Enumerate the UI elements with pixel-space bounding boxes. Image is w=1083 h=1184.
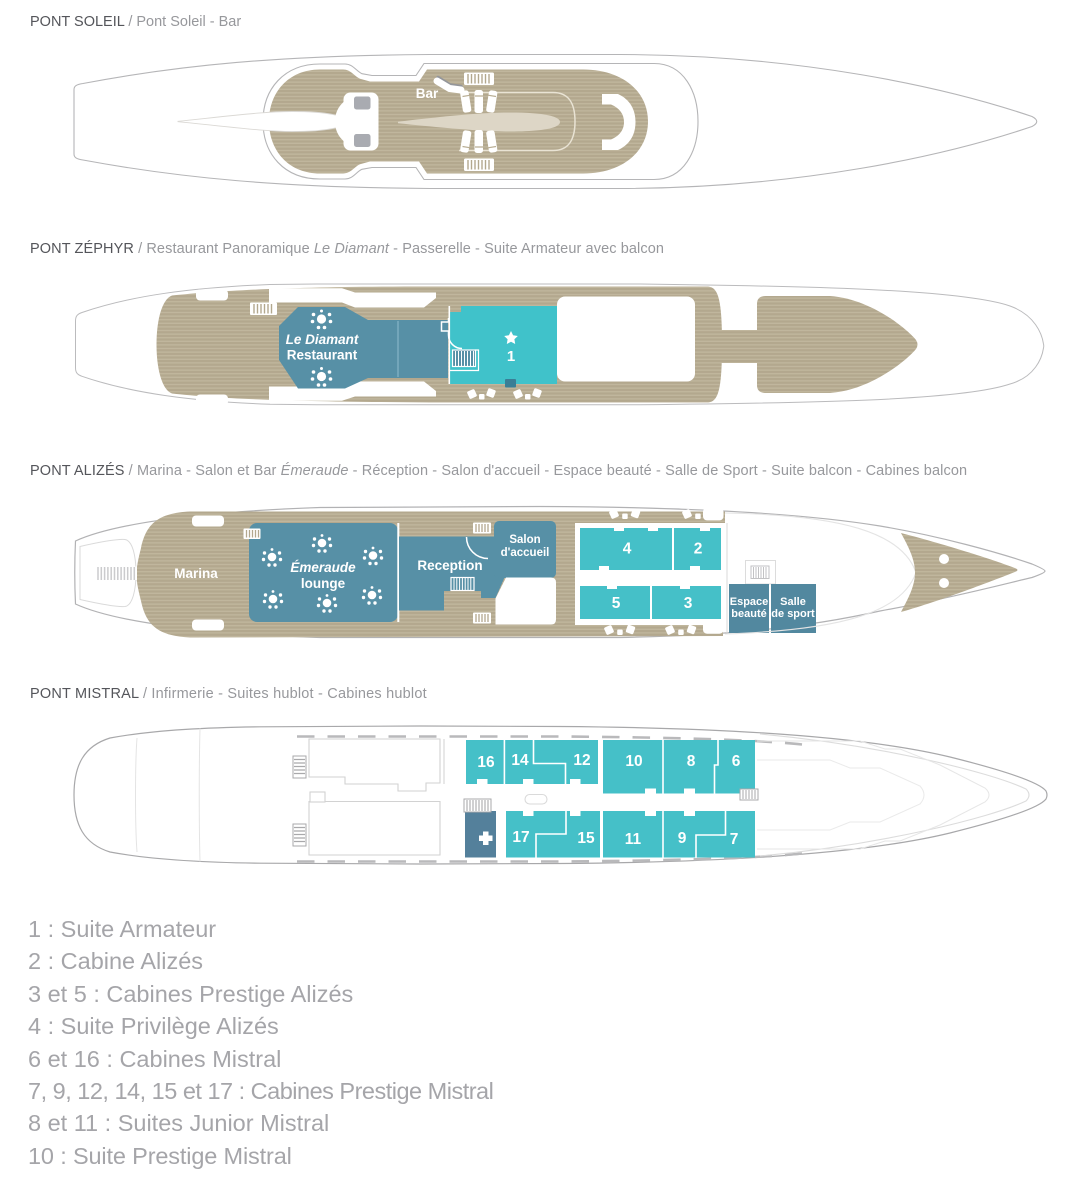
- svg-text:de sport: de sport: [771, 608, 815, 620]
- svg-text:Salon: Salon: [509, 534, 540, 546]
- svg-text:12: 12: [573, 752, 590, 769]
- svg-text:2: 2: [694, 541, 703, 558]
- svg-text:3: 3: [684, 595, 693, 612]
- svg-text:Salle: Salle: [780, 596, 806, 608]
- svg-text:16: 16: [477, 754, 495, 771]
- svg-text:14: 14: [511, 752, 529, 769]
- svg-text:17: 17: [512, 829, 529, 846]
- svg-text:Restaurant: Restaurant: [287, 348, 358, 363]
- svg-text:1: 1: [507, 348, 515, 365]
- svg-text:15: 15: [577, 830, 595, 847]
- svg-text:Marina: Marina: [174, 566, 218, 581]
- svg-text:10: 10: [625, 753, 642, 770]
- svg-text:5: 5: [612, 595, 621, 612]
- svg-text:7: 7: [730, 831, 739, 848]
- svg-text:11: 11: [625, 831, 642, 848]
- svg-text:lounge: lounge: [301, 576, 346, 591]
- svg-text:Reception: Reception: [417, 558, 482, 573]
- svg-text:8: 8: [687, 753, 696, 770]
- svg-text:Bar: Bar: [416, 86, 439, 101]
- svg-text:6: 6: [732, 753, 741, 770]
- svg-text:Le Diamant: Le Diamant: [286, 332, 359, 347]
- svg-text:Émeraude: Émeraude: [290, 560, 356, 575]
- svg-text:Espace: Espace: [730, 596, 769, 608]
- svg-text:d'accueil: d'accueil: [501, 547, 550, 559]
- svg-text:4: 4: [623, 541, 632, 558]
- svg-text:beauté: beauté: [731, 608, 766, 620]
- svg-text:9: 9: [678, 830, 687, 847]
